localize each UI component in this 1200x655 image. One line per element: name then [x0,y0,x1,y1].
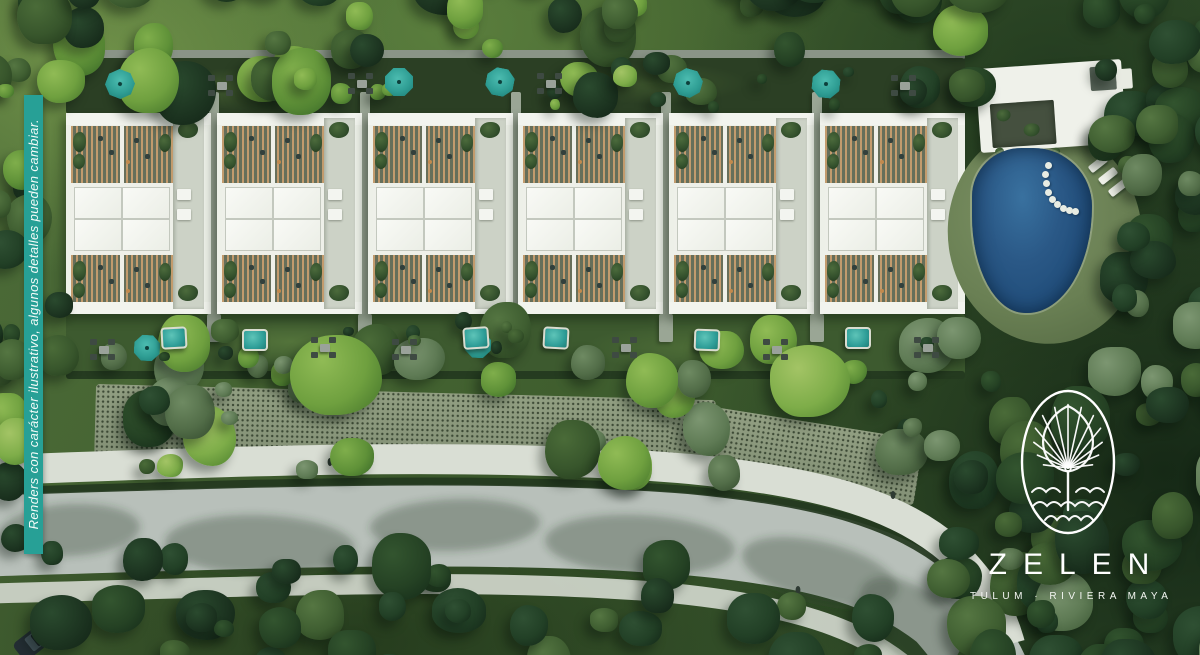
patio-umbrella [385,68,413,96]
dining-chair [630,337,637,343]
outdoor-dining-set [310,337,340,359]
dining-chair [348,88,355,94]
dining-chair [891,90,898,96]
dining-chair [410,339,417,345]
plunge-pool [542,326,569,349]
dining-chair [630,352,637,358]
umbrella-pole [117,81,122,86]
wave-row [1076,488,1104,492]
disclaimer-ribbon: Renders con carácter ilustrativo, alguno… [24,95,43,554]
umbrella-pole [145,346,149,350]
dining-chair [781,339,788,345]
dining-chair [348,73,355,79]
dining-chair [932,352,939,358]
brand-location: TULUM · RIVIERA MAYA [933,591,1200,602]
dining-chair [537,73,544,79]
wave-row [1032,488,1060,492]
dining-chair [392,339,399,345]
dining-chair [108,354,115,360]
patio-umbrella [811,69,842,100]
dining-table [621,344,631,352]
plunge-pool [462,326,489,350]
dining-chair [366,73,373,79]
dining-chair [90,354,97,360]
dining-chair [914,352,921,358]
palm-leaf-waves-icon [1003,386,1133,538]
dining-chair [226,75,233,81]
dining-table [900,82,910,90]
patio-umbrella [102,66,138,102]
dining-table [401,346,411,354]
outdoor-dining-set [890,75,920,97]
patio-umbrella [671,66,706,101]
dining-table [923,344,933,352]
outdoor-dining-set [611,337,641,359]
dining-chair [555,73,562,79]
patio-umbrella [484,66,517,99]
dining-table [99,346,109,354]
dining-chair [914,337,921,343]
dining-chair [90,339,97,345]
dining-chair [909,75,916,81]
dining-chair [612,352,619,358]
dining-chair [612,337,619,343]
dining-table [772,346,782,354]
outdoor-dining-set [207,75,237,97]
outdoor-dining-set [913,337,943,359]
wave-row [1045,516,1093,520]
dining-chair [555,88,562,94]
dining-chair [329,337,336,343]
plunge-pool [694,329,721,352]
dining-chair [108,339,115,345]
dining-chair [781,354,788,360]
disclaimer-text: Renders con carácter ilustrativo, alguno… [26,119,41,529]
dining-chair [226,90,233,96]
umbrella-pole [686,81,691,86]
outdoor-dining-set [762,339,792,361]
umbrella-pole [498,80,503,85]
outdoor-dining-set [536,73,566,95]
outdoor-dining-set [89,339,119,361]
plunge-pool [845,327,871,349]
plunge-pool [242,329,268,351]
umbrella-pole [824,82,828,86]
dining-chair [763,354,770,360]
dining-chair [329,352,336,358]
aerial-development-render: Renders con carácter ilustrativo, alguno… [0,0,1200,655]
plunge-pool [160,326,187,349]
umbrella-pole [397,80,401,84]
dining-chair [208,75,215,81]
dining-chair [932,337,939,343]
dining-chair [891,75,898,81]
outdoor-dining-set [347,73,377,95]
dining-chair [909,90,916,96]
dining-table [217,82,227,90]
dining-chair [366,88,373,94]
outdoor-dining-set [391,339,421,361]
patio-umbrella [133,334,160,361]
brand-name: ZELEN [933,548,1200,582]
dining-chair [392,354,399,360]
dining-chair [311,352,318,358]
dining-chair [208,90,215,96]
dining-table [546,80,556,88]
dining-chair [537,88,544,94]
dining-chair [763,339,770,345]
dining-table [357,80,367,88]
dining-table [320,344,330,352]
dining-chair [311,337,318,343]
dining-chair [410,354,417,360]
